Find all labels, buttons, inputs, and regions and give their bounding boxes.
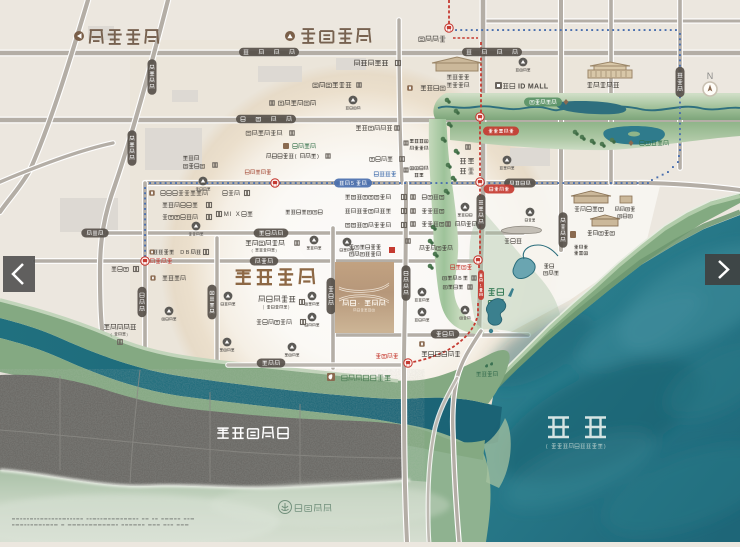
svg-text:): ): [317, 154, 319, 160]
svg-text:N: N: [707, 71, 714, 81]
svg-text:1: 1: [480, 283, 482, 287]
svg-text:5: 5: [351, 181, 354, 187]
svg-text:(: (: [295, 154, 297, 160]
svg-text:X: X: [236, 211, 240, 218]
svg-text:(: (: [546, 444, 548, 450]
svg-text:B: B: [186, 250, 190, 256]
svg-text:M: M: [224, 211, 229, 218]
svg-text:D: D: [180, 250, 184, 256]
svg-text:I: I: [230, 211, 232, 218]
svg-text:B: B: [458, 276, 462, 282]
svg-text:): ): [604, 444, 606, 450]
svg-text:ID MALL: ID MALL: [518, 84, 549, 91]
svg-text:·: ·: [358, 299, 360, 307]
